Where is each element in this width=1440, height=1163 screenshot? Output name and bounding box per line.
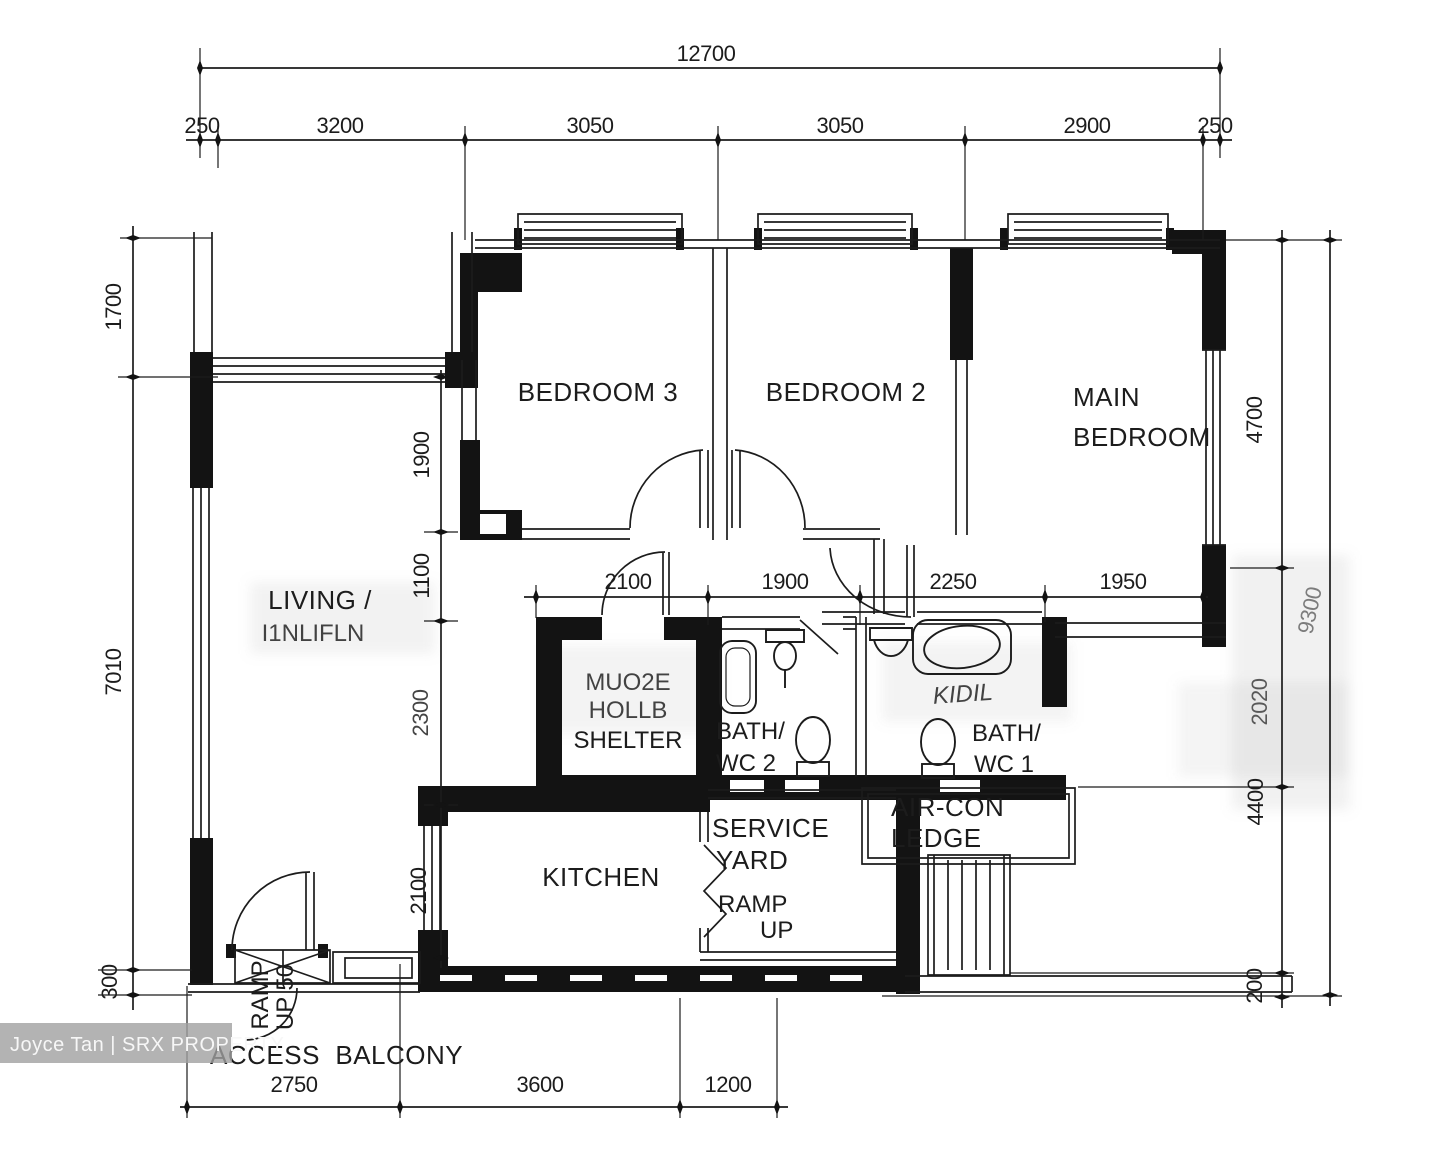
floor-plan-page: 12700 250 3200 3050 3050 2900 250 1700 7… [0,0,1440,1163]
bath2-door-leaf [800,620,838,654]
room-label-bath1-1: BATH/ [972,720,1041,747]
room-label-main-bedroom-1: MAIN [1073,382,1140,412]
room-label-aircon-2: LEDGE [891,823,982,853]
dim-top-2900: 2900 [1064,113,1111,138]
room-label-service-yard-1: SERVICE [712,813,829,843]
dim-top-250-right: 250 [1197,113,1232,138]
dim-right-200: 200 [1242,968,1267,1003]
dim-mid-1950: 1950 [1100,569,1147,594]
dim-inner-2300: 2300 [408,689,433,736]
bedroom3-door-arc [630,450,708,528]
bath2-tub-inner [726,648,750,706]
room-label-ramp-up50-1: RAMP [247,960,274,1029]
dim-inner-2100: 2100 [406,867,431,914]
dim-right-2020: 2020 [1247,678,1272,725]
room-label-kitchen: KITCHEN [542,862,660,892]
room-label-bath2-2: WC 2 [716,750,776,777]
dim-inner-1900: 1900 [409,431,434,478]
stairs-lines [928,855,1010,975]
room-label-ramp-up-1: RAMP [718,891,787,918]
dim-right-4400: 4400 [1243,778,1268,825]
room-label-shelter-3: SHELTER [574,727,683,754]
dim-mid-1900: 1900 [762,569,809,594]
dim-mid-2250: 2250 [930,569,977,594]
room-label-ramp-up-2: UP [760,917,793,944]
bath1-toilet-bowl [921,719,955,765]
room-label-living-1: LIVING / [268,585,372,615]
dim-mid-2100: 2100 [605,569,652,594]
entrance-door-arc [232,872,314,950]
dim-top-3050-a: 3050 [567,113,614,138]
bath2-toilet-bowl [796,717,830,763]
bath2-sink-bowl [774,642,796,670]
floor-plan-svg: 12700 250 3200 3050 3050 2900 250 1700 7… [0,0,1440,1163]
artifact-text-bath1: KIDIL [932,679,994,710]
dim-bottom-1200: 1200 [705,1072,752,1097]
room-label-main-bedroom-2: BEDROOM [1073,422,1211,452]
room-label-service-yard-2: YARD [716,845,788,875]
dim-left-7010: 7010 [101,648,126,695]
dim-top-3200: 3200 [317,113,364,138]
dimension-texts: 12700 250 3200 3050 3050 2900 250 1700 7… [97,41,1327,1097]
dim-left-1700: 1700 [101,283,126,330]
room-label-bedroom2: BEDROOM 2 [766,377,927,407]
room-label-bath1-2: WC 1 [974,751,1034,778]
room-label-bath2-1: BATH/ [716,718,785,745]
stairs [928,855,1010,975]
bath2-sink [766,630,804,688]
dim-bottom-2750: 2750 [271,1072,318,1097]
room-label-ramp-up50-2: UP 50 [272,964,299,1030]
dim-top-250-left: 250 [184,113,219,138]
room-label-bedroom3: BEDROOM 3 [518,377,679,407]
main-bedroom-door-arc [830,545,914,617]
room-label-aircon-1: AIR-CON [891,792,1004,822]
bedroom2-door-arc [732,450,805,528]
bath2-toilet-tank [797,762,829,776]
dim-bottom-3600: 3600 [517,1072,564,1097]
room-label-living-2-garbled: I1NLIFLN [262,620,365,647]
dim-left-300: 300 [97,964,122,999]
room-label-shelter-1-garbled: MUO2E [585,669,670,696]
dim-top-total: 12700 [677,41,736,66]
dim-top-3050-b: 3050 [817,113,864,138]
watermark-text: Joyce Tan | SRX PROPERTY [10,1034,284,1056]
dim-right-4700: 4700 [1242,396,1267,443]
dim-inner-1100: 1100 [409,553,434,599]
room-label-shelter-2-garbled: HOLLB [589,697,668,724]
